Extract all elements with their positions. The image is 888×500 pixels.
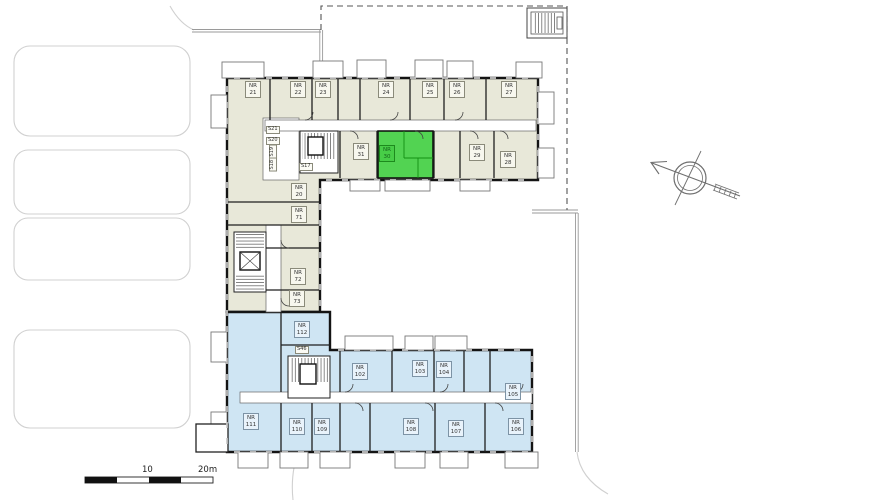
stair-label-s18: S18 (269, 158, 277, 172)
room-label-nr-108[interactable]: NR 108 (403, 418, 419, 435)
room-label-nr-27[interactable]: NR 27 (501, 81, 517, 98)
room-label-nr-107[interactable]: NR 107 (448, 420, 464, 437)
room-label-nr-29[interactable]: NR 29 (469, 144, 485, 161)
floor-plan-drawing (0, 0, 888, 500)
entrance-recess (196, 424, 228, 452)
room-label-nr-105[interactable]: NR 105 (505, 383, 521, 400)
stairwell-west (234, 232, 266, 292)
room-label-nr-20[interactable]: NR 20 (291, 183, 307, 200)
room-label-nr-103[interactable]: NR 103 (412, 360, 428, 377)
room-label-nr-26[interactable]: NR 26 (449, 81, 465, 98)
floor-plan-canvas: NR 21 NR 22 NR 23 NR 24 NR 25 NR 26 NR 2… (0, 0, 888, 500)
room-label-nr-110[interactable]: NR 110 (289, 418, 305, 435)
room-label-nr-30-selected[interactable]: NR 30 (379, 145, 395, 162)
external-stair-structure (527, 8, 567, 38)
room-label-nr-106[interactable]: NR 106 (508, 418, 524, 435)
room-label-nr-104[interactable]: NR 104 (436, 361, 452, 378)
room-label-nr-25[interactable]: NR 25 (422, 81, 438, 98)
room-label-nr-112[interactable]: NR 112 (294, 321, 310, 338)
room-label-nr-72[interactable]: NR 72 (290, 268, 306, 285)
room-label-nr-31[interactable]: NR 31 (353, 143, 369, 160)
stair-label-s19: S19 (269, 145, 277, 159)
room-label-nr-22[interactable]: NR 22 (290, 81, 306, 98)
north-arrow-icon (651, 151, 740, 205)
stair-label-s21: S21 (266, 126, 280, 134)
south-wing (227, 312, 532, 452)
stair-label-s46: S46 (295, 346, 309, 354)
room-label-nr-21[interactable]: NR 21 (245, 81, 261, 98)
room-label-nr-109[interactable]: NR 109 (314, 418, 330, 435)
room-label-nr-28[interactable]: NR 28 (500, 151, 516, 168)
room-label-nr-23[interactable]: NR 23 (315, 81, 331, 98)
stairwell-south (288, 356, 330, 398)
room-label-nr-111[interactable]: NR 111 (243, 413, 259, 430)
room-label-nr-24[interactable]: NR 24 (378, 81, 394, 98)
room-label-nr-102[interactable]: NR 102 (352, 363, 368, 380)
room-label-nr-73[interactable]: NR 73 (289, 290, 305, 307)
scale-mid-label: 10 (142, 465, 153, 475)
stair-label-s17: S17 (299, 163, 313, 171)
stair-label-s20: S20 (266, 137, 280, 145)
scale-end-label: 20m (198, 465, 217, 475)
scale-bar (85, 477, 213, 483)
room-label-nr-71[interactable]: NR 71 (291, 206, 307, 223)
